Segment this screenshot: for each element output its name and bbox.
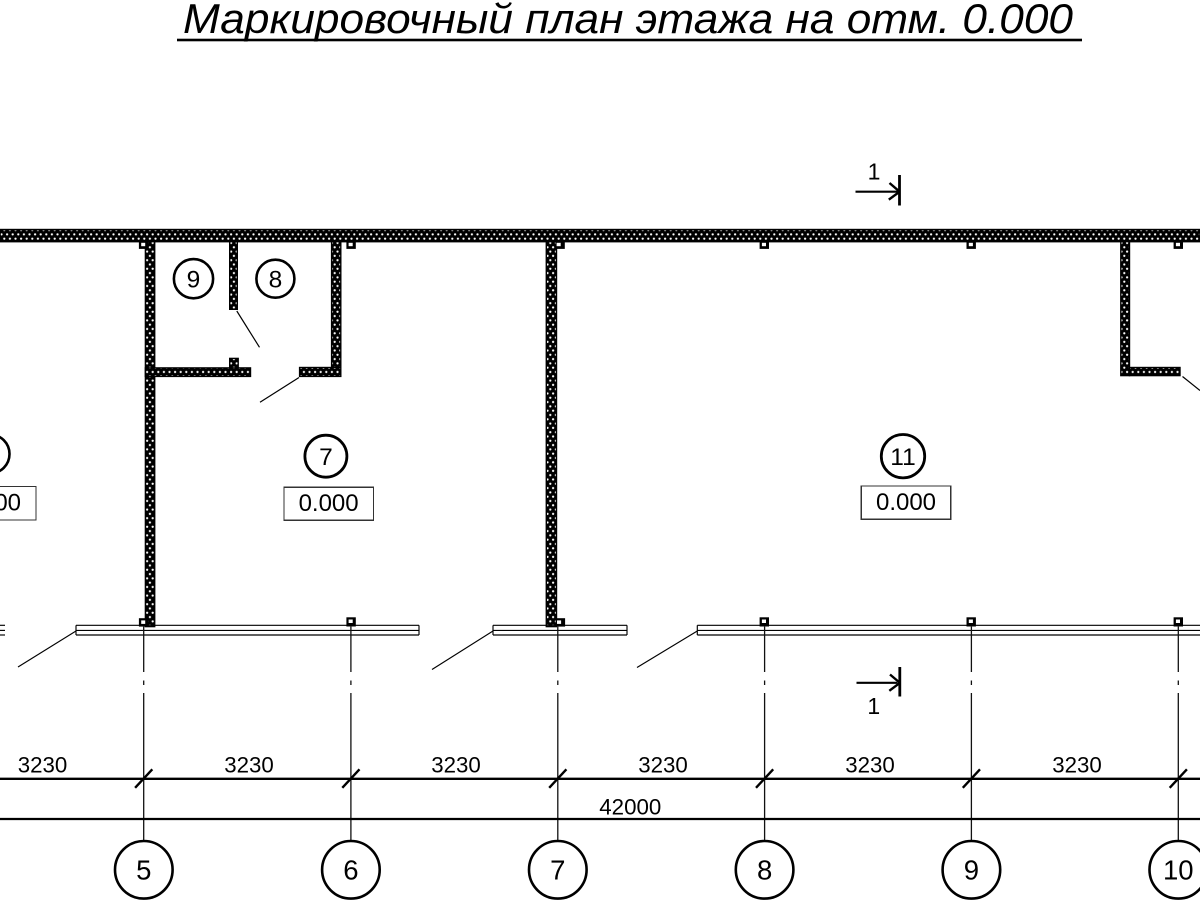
svg-text:3230: 3230: [1052, 753, 1102, 778]
svg-text:7: 7: [550, 855, 565, 886]
svg-text:42000: 42000: [599, 794, 661, 819]
svg-text:3230: 3230: [431, 753, 481, 778]
svg-text:Маркировочный план этажа на от: Маркировочный план этажа на отм. 0.000: [183, 0, 1073, 42]
svg-text:3230: 3230: [224, 753, 274, 778]
svg-text:1: 1: [868, 159, 881, 185]
svg-text:3230: 3230: [638, 753, 688, 778]
svg-text:11: 11: [890, 444, 915, 471]
svg-text:10: 10: [1163, 855, 1194, 886]
svg-text:5: 5: [136, 855, 151, 886]
svg-text:0.000: 0.000: [876, 489, 936, 516]
svg-text:9: 9: [964, 855, 979, 886]
svg-text:0.000: 0.000: [0, 490, 21, 517]
svg-text:7: 7: [319, 444, 333, 471]
svg-text:9: 9: [187, 266, 201, 293]
svg-text:6: 6: [343, 855, 358, 886]
svg-text:8: 8: [269, 266, 283, 293]
svg-text:3230: 3230: [845, 753, 895, 778]
svg-text:0.000: 0.000: [299, 490, 359, 517]
svg-text:8: 8: [757, 855, 772, 886]
svg-text:1: 1: [867, 693, 880, 719]
svg-text:3230: 3230: [18, 753, 68, 778]
